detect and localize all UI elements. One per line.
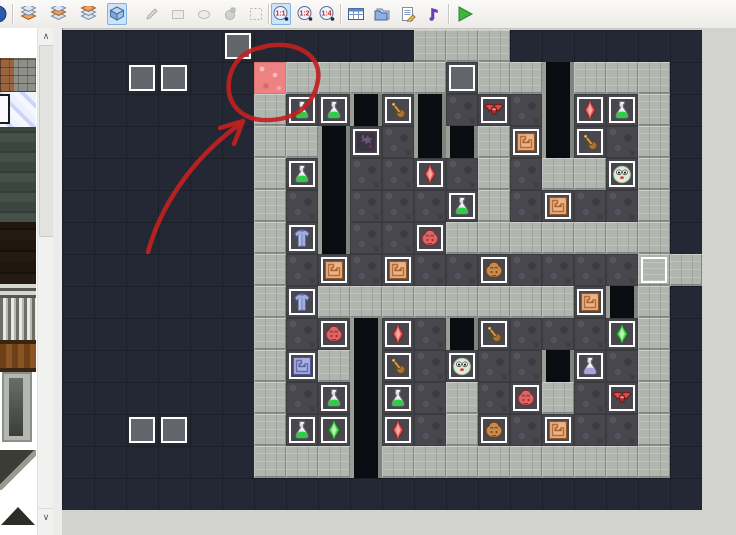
map-tile-pit[interactable] — [350, 350, 382, 382]
map-tile-wall[interactable] — [286, 446, 318, 478]
map-tile-floor[interactable] — [510, 350, 542, 382]
map-tile-wall[interactable] — [414, 30, 446, 62]
canvas-bottom-gutter — [62, 510, 736, 535]
map-tile-wall[interactable] — [542, 158, 574, 190]
map-tile-wall[interactable] — [638, 318, 670, 350]
map-tile-wall[interactable] — [446, 382, 478, 414]
map-tile-wall[interactable] — [542, 382, 574, 414]
event-brown-beast[interactable] — [481, 417, 507, 443]
map-tile-wall[interactable] — [478, 222, 510, 254]
green-potion-icon — [611, 99, 633, 121]
red-bat-icon — [483, 99, 505, 121]
map-tile-wall[interactable] — [446, 30, 478, 62]
event-red-crystal[interactable] — [417, 161, 443, 187]
event-red-bat[interactable] — [481, 97, 507, 123]
map-tile-floor[interactable] — [382, 126, 414, 158]
map-tile-wall[interactable] — [318, 446, 350, 478]
fill-tool-button-icon — [222, 6, 238, 22]
map-tile-wall[interactable] — [638, 94, 670, 126]
playtest-button-icon — [456, 5, 474, 23]
event-wood-club[interactable] — [385, 353, 411, 379]
event-green-potion[interactable] — [289, 161, 315, 187]
map-tile-wall[interactable] — [254, 318, 286, 350]
event-orange-switch[interactable] — [545, 417, 571, 443]
zoom-1-2-button-icon: 1:2 — [296, 5, 314, 23]
layer3-button-icon — [80, 6, 97, 22]
svg-text:1:1: 1:1 — [275, 11, 285, 18]
event-ghost[interactable] — [449, 353, 475, 379]
tileset-ramp[interactable] — [0, 450, 36, 490]
map-tile-wall[interactable] — [542, 222, 574, 254]
annotation-arrow-shaft — [148, 124, 240, 252]
map-tile-wall[interactable] — [478, 286, 510, 318]
select-tool-button-icon — [248, 6, 264, 22]
event-red-bat[interactable] — [609, 385, 635, 411]
map-tile-wall[interactable] — [638, 190, 670, 222]
map-tile-wall[interactable] — [254, 414, 286, 446]
map-tile-wall[interactable] — [478, 62, 510, 94]
green-potion-icon — [291, 163, 313, 185]
map-tile-pit[interactable] — [318, 126, 350, 158]
map-tile-wall[interactable] — [254, 126, 286, 158]
map-tile-wall[interactable] — [478, 446, 510, 478]
green-potion-icon — [323, 387, 345, 409]
map-tile-pit[interactable] — [414, 126, 446, 158]
event-brown-beast[interactable] — [481, 257, 507, 283]
layer1-button[interactable] — [18, 3, 38, 25]
green-potion-icon — [291, 99, 313, 121]
tileset-palette: ∧ ∨ — [0, 28, 53, 535]
event-green-potion[interactable] — [321, 97, 347, 123]
map-canvas[interactable] — [62, 30, 702, 510]
materials-button-icon — [373, 6, 391, 22]
map-tile-wall[interactable] — [254, 446, 286, 478]
map-tile-wall[interactable] — [510, 222, 542, 254]
fill-tool-button[interactable] — [220, 3, 240, 25]
map-tile-wall[interactable] — [382, 446, 414, 478]
event-orange-switch[interactable] — [321, 257, 347, 283]
map-tile-floor[interactable] — [606, 414, 638, 446]
sound-test-button-icon — [427, 6, 441, 22]
map-tile-floor[interactable] — [574, 414, 606, 446]
map-tile-wall[interactable] — [382, 286, 414, 318]
map-tile-pit[interactable] — [542, 126, 574, 158]
map-tile-wall[interactable] — [478, 158, 510, 190]
map-tile-floor[interactable] — [286, 382, 318, 414]
map-tile-pit[interactable] — [606, 286, 638, 318]
svg-text:1:4: 1:4 — [321, 11, 331, 18]
map-tile-wall[interactable] — [542, 446, 574, 478]
map-tile-pit[interactable] — [414, 94, 446, 126]
green-potion-icon — [451, 195, 473, 217]
map-tile-pit[interactable] — [350, 446, 382, 478]
map-tile-floor[interactable] — [478, 350, 510, 382]
event-green-potion[interactable] — [449, 193, 475, 219]
map-tile-wall[interactable] — [638, 414, 670, 446]
map-tile-wall[interactable] — [478, 30, 510, 62]
map-tile-floor[interactable] — [510, 94, 542, 126]
event-gray-square[interactable] — [161, 417, 187, 443]
canvas-right-gutter — [702, 28, 736, 535]
red-bat-icon — [611, 387, 633, 409]
event-green-potion[interactable] — [289, 417, 315, 443]
ghost-icon — [611, 163, 633, 185]
map-tile-wall[interactable] — [414, 62, 446, 94]
map-tile-wall[interactable] — [606, 446, 638, 478]
tileset-scrollbar[interactable]: ∧ ∨ — [37, 28, 53, 535]
event-layer-button-icon — [109, 6, 125, 22]
map-tile-floor[interactable] — [606, 254, 638, 286]
map-tile-floor[interactable] — [606, 190, 638, 222]
map-tile-floor[interactable] — [510, 190, 542, 222]
map-editor-window: { "toolbar": { "zoom_labels": ["1:1", "1… — [0, 0, 736, 535]
map-tile-wall[interactable] — [286, 62, 318, 94]
map-tile-wall[interactable] — [574, 446, 606, 478]
event-gray-square[interactable] — [129, 65, 155, 91]
map-tile-floor[interactable] — [510, 254, 542, 286]
zoom-1-1-button[interactable]: 1:1 — [271, 3, 291, 25]
svg-text:1:2: 1:2 — [299, 11, 309, 18]
pencil-tool-button-icon — [144, 6, 160, 22]
map-tile-wall[interactable] — [414, 286, 446, 318]
map-tile-wall[interactable] — [254, 158, 286, 190]
map-tile-wall[interactable] — [670, 254, 702, 286]
event-green-potion[interactable] — [385, 385, 411, 411]
map-tile-wall[interactable] — [350, 62, 382, 94]
map-tile-floor[interactable] — [286, 318, 318, 350]
purple-switch-icon — [291, 355, 313, 377]
map-tile-wall[interactable] — [574, 158, 606, 190]
map-tile-floor[interactable] — [446, 254, 478, 286]
map-tile-wall[interactable] — [254, 254, 286, 286]
map-tile-pit[interactable] — [318, 190, 350, 222]
event-wood-club[interactable] — [385, 97, 411, 123]
map-tile-wall[interactable] — [318, 350, 350, 382]
map-tile-wall[interactable] — [286, 126, 318, 158]
event-red-crystal[interactable] — [577, 97, 603, 123]
event-green-crystal[interactable] — [321, 417, 347, 443]
map-tile-wall[interactable] — [638, 62, 670, 94]
map-tile-wall[interactable] — [638, 126, 670, 158]
event-wood-club[interactable] — [481, 321, 507, 347]
map-tile-wall[interactable] — [446, 286, 478, 318]
script-editor-button[interactable] — [398, 3, 418, 25]
rectangle-tool-button-icon — [170, 6, 186, 22]
map-tile-wall[interactable] — [382, 62, 414, 94]
map-tile-pit[interactable] — [446, 126, 478, 158]
map-tile-floor[interactable] — [350, 190, 382, 222]
zoom-1-2-button[interactable]: 1:2 — [295, 3, 315, 25]
map-tile-floor[interactable] — [446, 94, 478, 126]
brown-beast-icon — [483, 259, 505, 281]
map-tile-wall[interactable] — [510, 286, 542, 318]
lava-tile[interactable] — [254, 62, 286, 94]
map-tile-wall[interactable] — [638, 382, 670, 414]
demon-tile-icon — [355, 131, 377, 153]
map-tile-wall[interactable] — [542, 286, 574, 318]
map-tile-wall[interactable] — [446, 222, 478, 254]
event-gray-square[interactable] — [129, 417, 155, 443]
map-tile-pit[interactable] — [350, 414, 382, 446]
event-gray-square[interactable] — [449, 65, 475, 91]
event-orange-switch[interactable] — [385, 257, 411, 283]
wood-club-icon — [387, 355, 409, 377]
map-tile-wall[interactable] — [638, 286, 670, 318]
map-tile-pit[interactable] — [542, 62, 574, 94]
map-tile-floor[interactable] — [382, 190, 414, 222]
toolbar-separator-3 — [340, 4, 341, 24]
map-tile-wall[interactable] — [510, 62, 542, 94]
map-tile-wall[interactable] — [254, 94, 286, 126]
map-tile-wall[interactable] — [638, 158, 670, 190]
map-tile-floor[interactable] — [414, 382, 446, 414]
event-red-beast[interactable] — [417, 225, 443, 251]
toolbar-separator-2 — [268, 4, 269, 24]
sound-test-button[interactable] — [424, 3, 444, 25]
red-crystal-icon — [579, 99, 601, 121]
map-tile-pit[interactable] — [542, 350, 574, 382]
event-wall-square[interactable] — [641, 257, 667, 283]
map-tile-wall[interactable] — [414, 446, 446, 478]
blue-armor-icon — [291, 291, 313, 313]
map-tile-floor[interactable] — [414, 414, 446, 446]
tileset-brick-stone[interactable] — [0, 58, 36, 92]
tileset-grate[interactable] — [0, 284, 36, 298]
toolbar: 1:11:21:4 — [0, 0, 736, 29]
event-orange-switch[interactable] — [577, 289, 603, 315]
database-button-icon — [347, 6, 365, 22]
map-tile-floor[interactable] — [350, 222, 382, 254]
map-tile-wall[interactable] — [638, 446, 670, 478]
map-tile-floor[interactable] — [286, 254, 318, 286]
map-tile-pit[interactable] — [542, 94, 574, 126]
map-tile-floor[interactable] — [414, 318, 446, 350]
map-tile-floor[interactable] — [350, 158, 382, 190]
green-potion-icon — [291, 419, 313, 441]
tileset-fence[interactable] — [0, 340, 36, 372]
tileset-scrollbar-thumb[interactable] — [39, 45, 53, 237]
map-tile-floor[interactable] — [414, 254, 446, 286]
event-red-beast[interactable] — [513, 385, 539, 411]
event-purple-switch[interactable] — [289, 353, 315, 379]
map-tile-floor[interactable] — [382, 158, 414, 190]
purple-potion-icon — [579, 355, 601, 377]
map-tile-wall[interactable] — [350, 286, 382, 318]
orange-switch-icon — [387, 259, 409, 281]
map-tile-floor[interactable] — [606, 350, 638, 382]
event-purple-potion[interactable] — [577, 353, 603, 379]
event-green-crystal[interactable] — [609, 321, 635, 347]
event-blue-armor[interactable] — [289, 225, 315, 251]
event-demon-tile[interactable] — [353, 129, 379, 155]
event-red-crystal[interactable] — [385, 417, 411, 443]
toolbar-separator-1 — [12, 4, 13, 24]
orange-switch-icon — [515, 131, 537, 153]
wood-club-icon — [579, 131, 601, 153]
map-tile-floor[interactable] — [542, 254, 574, 286]
map-tile-floor[interactable] — [574, 382, 606, 414]
map-tile-floor[interactable] — [574, 318, 606, 350]
event-red-beast[interactable] — [321, 321, 347, 347]
app-icon-partial-icon — [0, 4, 12, 24]
blue-armor-icon — [291, 227, 313, 249]
event-layer-button[interactable] — [107, 3, 127, 25]
map-tile-wall[interactable] — [478, 190, 510, 222]
tileset-selected-tile[interactable] — [0, 94, 10, 124]
materials-button[interactable] — [372, 3, 392, 25]
map-tile-wall[interactable] — [318, 62, 350, 94]
event-ghost[interactable] — [609, 161, 635, 187]
map-tile-wall[interactable] — [606, 222, 638, 254]
red-crystal-icon — [387, 323, 409, 345]
playtest-button[interactable] — [455, 3, 475, 25]
zoom-1-4-button[interactable]: 1:4 — [317, 3, 337, 25]
ellipse-tool-button-icon — [196, 6, 212, 22]
database-button[interactable] — [346, 3, 366, 25]
map-tile-floor[interactable] — [414, 190, 446, 222]
map-tile-floor[interactable] — [574, 254, 606, 286]
orange-switch-icon — [547, 195, 569, 217]
orange-switch-icon — [579, 291, 601, 313]
brown-beast-icon — [483, 419, 505, 441]
tileset-bars[interactable] — [0, 298, 36, 340]
rectangle-tool-button[interactable] — [168, 3, 188, 25]
red-crystal-icon — [419, 163, 441, 185]
event-wood-club[interactable] — [577, 129, 603, 155]
event-green-potion[interactable] — [321, 385, 347, 411]
event-red-crystal[interactable] — [385, 321, 411, 347]
orange-switch-icon — [323, 259, 345, 281]
map-tile-floor[interactable] — [478, 382, 510, 414]
map-tile-pit[interactable] — [350, 94, 382, 126]
event-green-potion[interactable] — [609, 97, 635, 123]
zoom-1-1-button-icon: 1:1 — [272, 5, 290, 23]
green-crystal-icon — [323, 419, 345, 441]
layer2-button-icon — [50, 6, 67, 22]
green-potion-icon — [323, 99, 345, 121]
map-tile-wall[interactable] — [254, 222, 286, 254]
map-tile-floor[interactable] — [574, 190, 606, 222]
layer1-button-icon — [20, 6, 37, 22]
map-tile-pit[interactable] — [318, 158, 350, 190]
wood-club-icon — [483, 323, 505, 345]
wood-club-icon — [387, 99, 409, 121]
event-gray-square[interactable] — [225, 33, 251, 59]
orange-switch-icon — [547, 419, 569, 441]
event-orange-switch[interactable] — [545, 193, 571, 219]
map-tile-wall[interactable] — [446, 446, 478, 478]
select-tool-button[interactable] — [246, 3, 266, 25]
scroll-down-arrow-icon[interactable]: ∨ — [38, 508, 53, 526]
map-tile-wall[interactable] — [254, 190, 286, 222]
map-tile-floor[interactable] — [542, 318, 574, 350]
map-tile-wall[interactable] — [446, 414, 478, 446]
tileset-dark-wood[interactable] — [0, 222, 36, 284]
red-crystal-icon — [387, 419, 409, 441]
tileset-moss-stone[interactable] — [0, 127, 36, 222]
map-tile-wall[interactable] — [478, 126, 510, 158]
event-blue-armor[interactable] — [289, 289, 315, 315]
map-tile-wall[interactable] — [574, 62, 606, 94]
red-beast-icon — [515, 387, 537, 409]
map-tile-floor[interactable] — [606, 126, 638, 158]
map-tile-floor[interactable] — [510, 318, 542, 350]
pencil-tool-button[interactable] — [142, 3, 162, 25]
map-tile-wall[interactable] — [318, 286, 350, 318]
map-tile-wall[interactable] — [510, 446, 542, 478]
event-green-potion[interactable] — [289, 97, 315, 123]
map-tile-pit[interactable] — [350, 382, 382, 414]
map-tile-floor[interactable] — [414, 350, 446, 382]
event-orange-switch[interactable] — [513, 129, 539, 155]
ghost-icon — [451, 355, 473, 377]
map-tile-pit[interactable] — [446, 318, 478, 350]
map-tile-floor[interactable] — [446, 158, 478, 190]
map-tile-floor[interactable] — [286, 190, 318, 222]
annotation-arrow-head — [220, 121, 243, 144]
green-potion-icon — [387, 387, 409, 409]
ellipse-tool-button[interactable] — [194, 3, 214, 25]
scroll-up-arrow-icon[interactable]: ∧ — [38, 28, 53, 46]
toolbar-separator-4 — [448, 4, 449, 24]
green-crystal-icon — [611, 323, 633, 345]
map-tile-wall[interactable] — [638, 350, 670, 382]
red-beast-icon — [323, 323, 345, 345]
map-tile-floor[interactable] — [350, 254, 382, 286]
layer2-button[interactable] — [48, 3, 68, 25]
tileset-pyramid[interactable] — [0, 505, 36, 527]
zoom-1-4-button-icon: 1:4 — [318, 5, 336, 23]
map-tile-wall[interactable] — [574, 222, 606, 254]
script-editor-button-icon — [400, 6, 416, 22]
map-tile-floor[interactable] — [510, 414, 542, 446]
map-tile-floor[interactable] — [382, 222, 414, 254]
tileset-well[interactable] — [0, 372, 36, 450]
map-tile-floor[interactable] — [510, 158, 542, 190]
map-tile-wall[interactable] — [254, 382, 286, 414]
map-tile-wall[interactable] — [254, 350, 286, 382]
red-beast-icon — [419, 227, 441, 249]
map-tile-pit[interactable] — [318, 222, 350, 254]
map-tile-pit[interactable] — [350, 318, 382, 350]
map-tile-wall[interactable] — [606, 62, 638, 94]
map-tile-wall[interactable] — [254, 286, 286, 318]
layer3-button[interactable] — [78, 3, 98, 25]
map-tile-wall[interactable] — [638, 222, 670, 254]
event-gray-square[interactable] — [161, 65, 187, 91]
